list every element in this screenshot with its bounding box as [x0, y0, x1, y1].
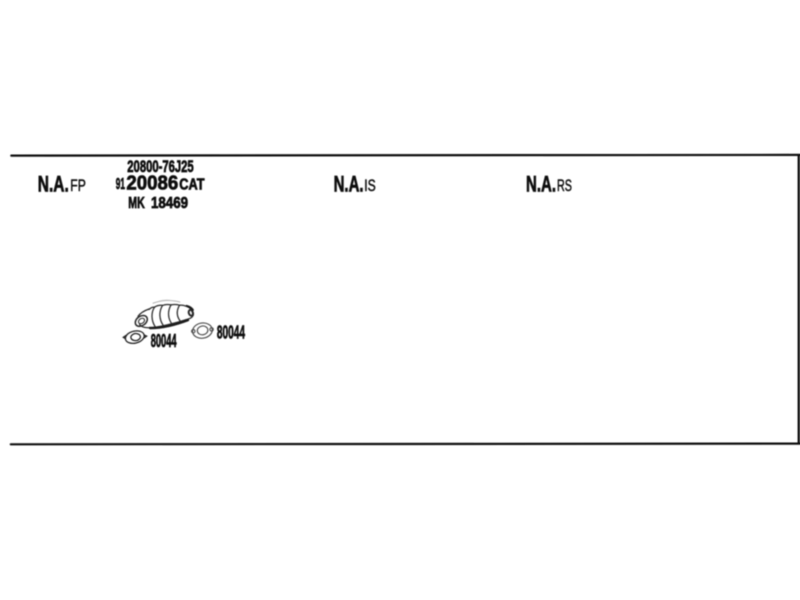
svg-text:18469: 18469 [151, 195, 188, 212]
svg-text:20086: 20086 [126, 173, 178, 195]
svg-text:N.A.: N.A. [38, 172, 69, 197]
svg-text:IS: IS [364, 176, 376, 195]
svg-text:MK: MK [128, 195, 145, 212]
svg-text:FP: FP [70, 176, 86, 195]
svg-text:CAT: CAT [179, 177, 204, 194]
svg-text:N.A.: N.A. [334, 172, 364, 197]
svg-text:N.A.: N.A. [526, 172, 556, 197]
svg-text:80044: 80044 [217, 322, 245, 343]
svg-text:91: 91 [116, 176, 125, 193]
svg-text:RS: RS [557, 176, 572, 195]
svg-text:80044: 80044 [151, 330, 177, 351]
